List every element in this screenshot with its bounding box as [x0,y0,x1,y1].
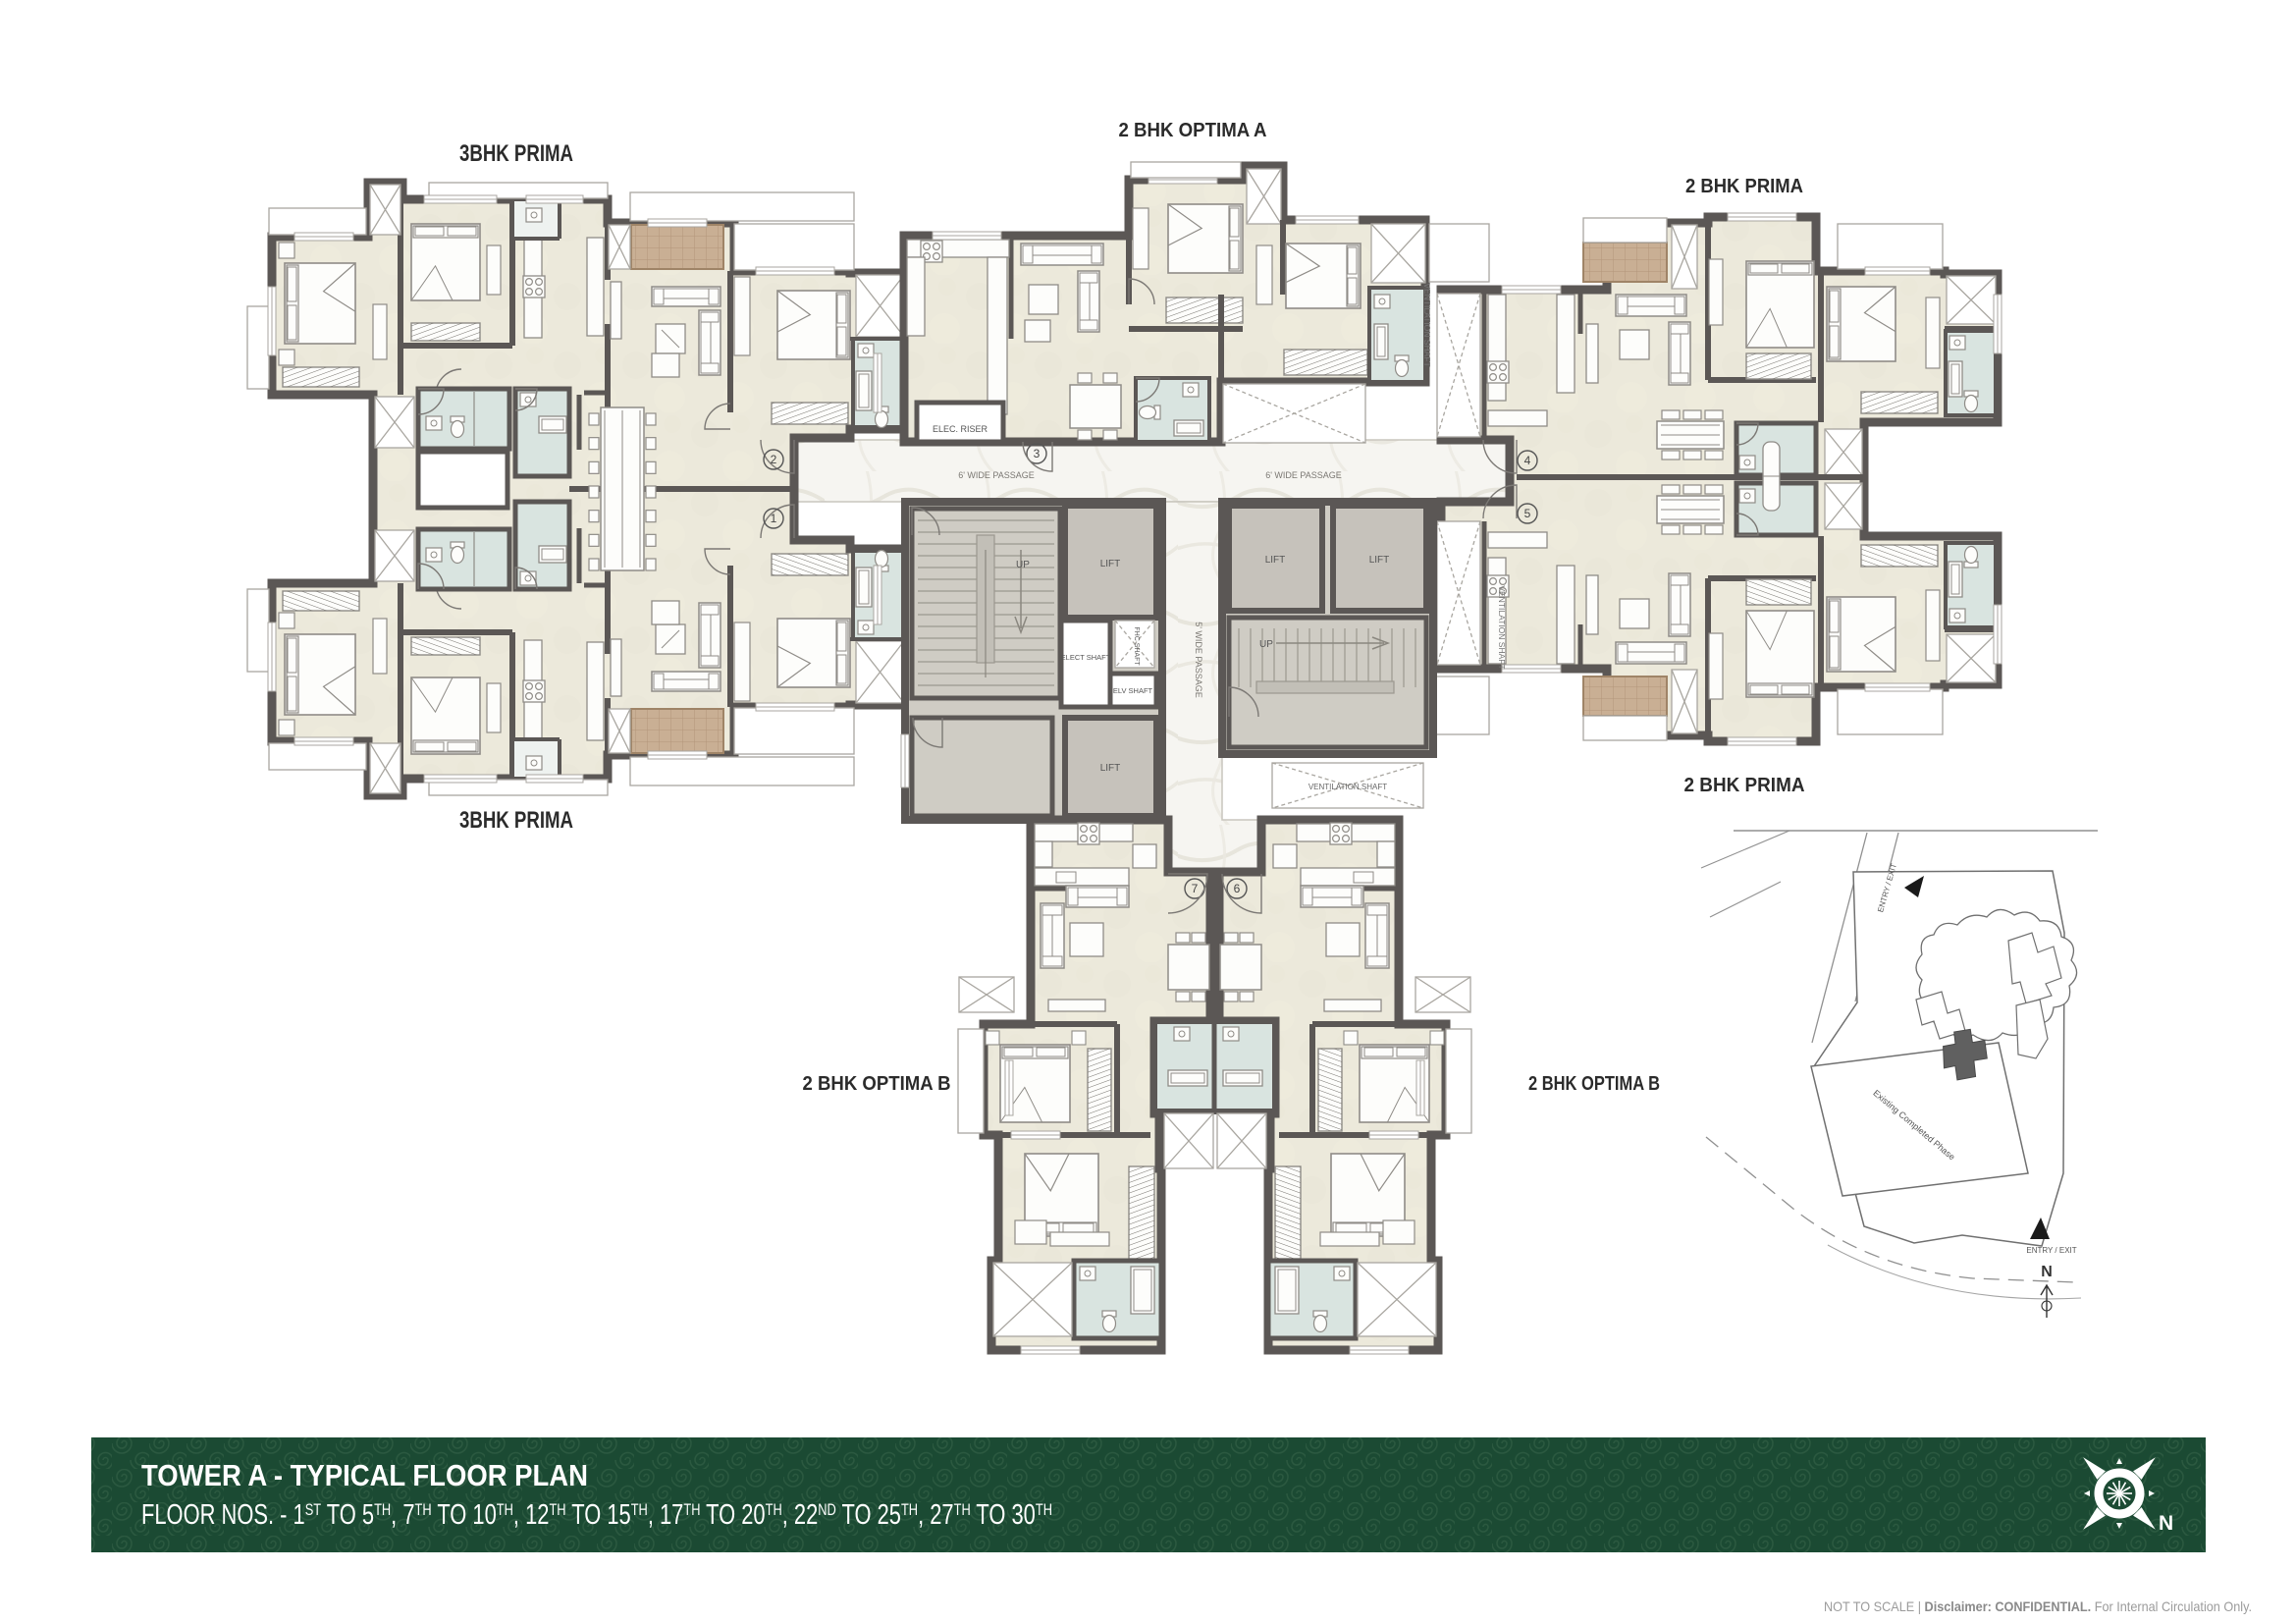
svg-text:VENTILATION SHAFT: VENTILATION SHAFT [1497,585,1507,669]
svg-text:TOWER A - TYPICAL FLOOR PLAN: TOWER A - TYPICAL FLOOR PLAN [141,1458,588,1492]
svg-text:6' WIDE PASSAGE: 6' WIDE PASSAGE [1265,470,1342,480]
svg-text:6: 6 [1234,882,1241,895]
svg-text:5' WIDE PASSAGE: 5' WIDE PASSAGE [1194,622,1203,698]
svg-text:VENTILATION SHAFT: VENTILATION SHAFT [1422,283,1432,366]
svg-text:3BHK PRIMA: 3BHK PRIMA [459,140,573,167]
svg-text:4: 4 [1524,454,1531,467]
svg-text:N: N [2159,1512,2173,1535]
svg-text:UP: UP [1016,560,1030,570]
svg-text:ENTRY / EXIT: ENTRY / EXIT [2026,1246,2076,1255]
svg-text:3BHK PRIMA: 3BHK PRIMA [459,807,573,834]
svg-text:FHC SHAFT: FHC SHAFT [1133,626,1140,666]
svg-text:2 BHK PRIMA: 2 BHK PRIMA [1684,775,1805,796]
svg-text:NOT TO SCALE | Disclaimer: CON: NOT TO SCALE | Disclaimer: CONFIDENTIAL.… [1824,1598,2252,1614]
svg-text:6' WIDE PASSAGE: 6' WIDE PASSAGE [958,470,1035,480]
svg-text:2: 2 [771,453,777,466]
svg-text:VENTILATION SHAFT: VENTILATION SHAFT [1308,783,1387,791]
svg-text:3: 3 [1034,447,1041,460]
svg-text:ELEC. RISER: ELEC. RISER [933,424,988,434]
svg-text:LIFT: LIFT [1100,763,1121,774]
svg-text:ELECT SHAFT: ELECT SHAFT [1061,653,1111,662]
svg-text:LIFT: LIFT [1369,555,1390,566]
svg-text:2 BHK OPTIMA B: 2 BHK OPTIMA B [1528,1073,1660,1095]
svg-text:2 BHK OPTIMA B: 2 BHK OPTIMA B [803,1073,951,1095]
svg-text:LIFT: LIFT [1265,555,1286,566]
svg-text:5: 5 [1524,507,1531,520]
svg-text:UP: UP [1259,639,1273,650]
svg-text:7: 7 [1192,882,1199,895]
svg-text:LIFT: LIFT [1100,559,1121,569]
svg-text:2 BHK OPTIMA A: 2 BHK OPTIMA A [1119,120,1267,141]
svg-text:1: 1 [771,512,777,525]
svg-text:2 BHK PRIMA: 2 BHK PRIMA [1685,176,1803,197]
svg-text:ELV SHAFT: ELV SHAFT [1113,686,1153,695]
svg-text:N: N [2041,1264,2053,1280]
